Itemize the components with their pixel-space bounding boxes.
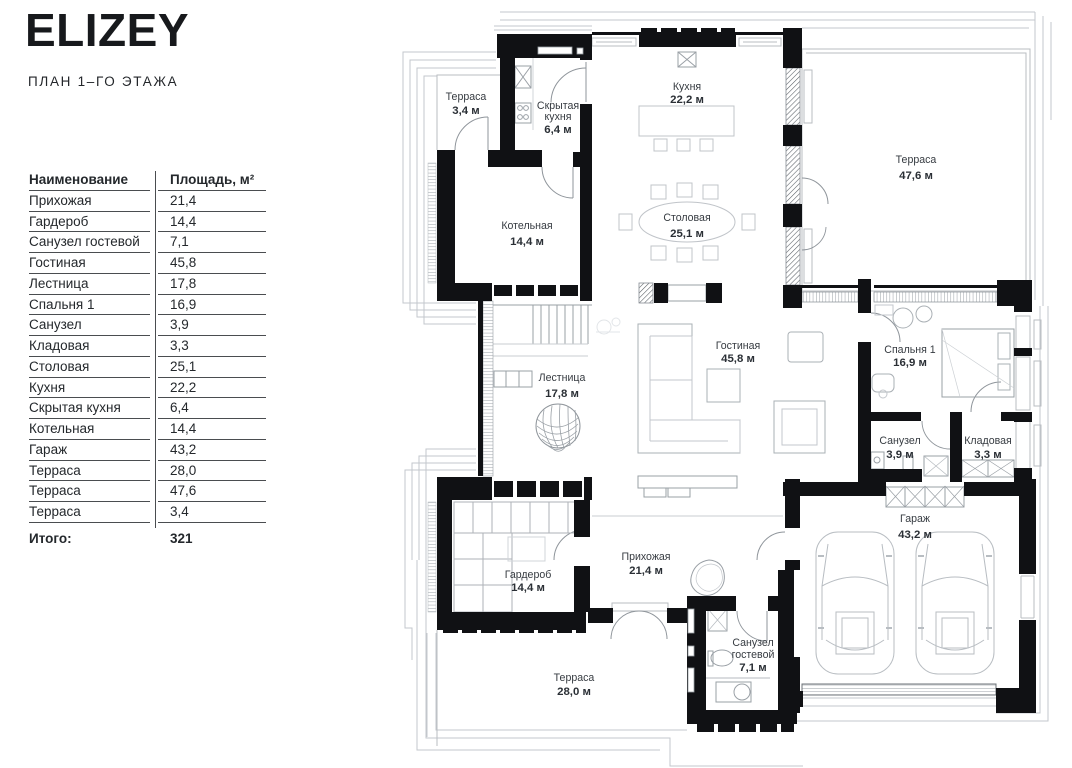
svg-text:Кладовая: Кладовая: [964, 435, 1011, 447]
svg-text:28,0 м: 28,0 м: [557, 686, 591, 698]
svg-text:Спальня 1: Спальня 1: [884, 344, 936, 356]
svg-text:14,4 м: 14,4 м: [511, 582, 545, 594]
svg-text:14,4 м: 14,4 м: [510, 236, 544, 248]
svg-text:Терраса: Терраса: [446, 91, 487, 103]
svg-text:3,4 м: 3,4 м: [452, 105, 479, 117]
svg-text:17,8 м: 17,8 м: [545, 388, 579, 400]
svg-text:Столовая: Столовая: [663, 212, 710, 224]
svg-text:7,1 м: 7,1 м: [739, 662, 766, 674]
svg-text:Кухня: Кухня: [673, 81, 701, 93]
svg-text:Лестница: Лестница: [539, 372, 586, 384]
svg-text:Санузел: Санузел: [879, 435, 920, 447]
svg-text:Котельная: Котельная: [501, 220, 552, 232]
svg-text:6,4 м: 6,4 м: [544, 124, 571, 136]
svg-text:47,6 м: 47,6 м: [899, 170, 933, 182]
svg-text:Терраса: Терраса: [554, 672, 595, 684]
svg-text:Прихожая: Прихожая: [621, 551, 670, 563]
svg-text:кухня: кухня: [545, 111, 572, 123]
svg-text:22,2 м: 22,2 м: [670, 94, 704, 106]
svg-text:21,4 м: 21,4 м: [629, 565, 663, 577]
svg-text:Терраса: Терраса: [896, 154, 937, 166]
svg-text:Гардероб: Гардероб: [505, 569, 552, 581]
svg-text:16,9 м: 16,9 м: [893, 357, 927, 369]
svg-text:Санузел: Санузел: [732, 637, 773, 649]
svg-text:Гостиная: Гостиная: [716, 340, 760, 352]
svg-text:45,8 м: 45,8 м: [721, 353, 755, 365]
svg-text:Гараж: Гараж: [900, 513, 931, 525]
svg-text:гостевой: гостевой: [732, 649, 775, 661]
svg-text:3,3 м: 3,3 м: [974, 449, 1001, 461]
svg-text:3,9 м: 3,9 м: [886, 449, 913, 461]
svg-text:25,1 м: 25,1 м: [670, 228, 704, 240]
svg-text:43,2 м: 43,2 м: [898, 529, 932, 541]
